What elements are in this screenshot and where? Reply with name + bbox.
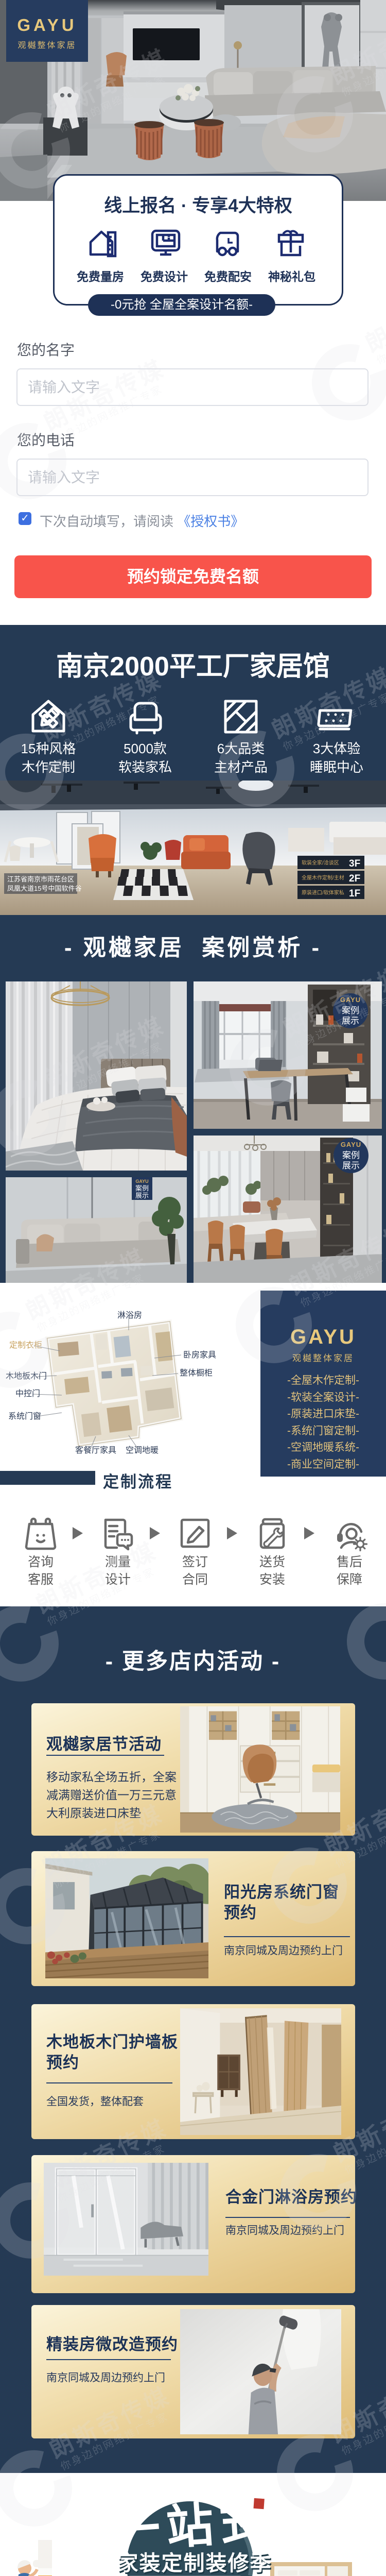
svg-text:6大品类: 6大品类 [217, 741, 265, 756]
svg-text:3F: 3F [349, 858, 360, 869]
svg-text:展示: 展示 [135, 1192, 149, 1199]
svg-text:原装进口/软体家私: 原装进口/软体家私 [302, 889, 344, 896]
svg-text:系统门窗: 系统门窗 [8, 1412, 41, 1421]
svg-text:设计: 设计 [105, 1572, 131, 1587]
svg-text:展示: 展示 [342, 1016, 359, 1026]
svg-text:睡眠中心: 睡眠中心 [310, 759, 363, 775]
svg-text:主材产品: 主材产品 [214, 759, 268, 775]
svg-text:家装定制装修季: 家装定制装修季 [117, 2551, 272, 2575]
svg-text:整体橱柜: 整体橱柜 [180, 1368, 213, 1378]
svg-text:测量: 测量 [105, 1555, 131, 1569]
svg-text:GAYU: GAYU [340, 996, 361, 1004]
svg-text:案例: 案例 [342, 1006, 359, 1015]
svg-text:案例: 案例 [135, 1184, 149, 1192]
svg-text:15种风格: 15种风格 [21, 741, 76, 756]
svg-text:3大体验: 3大体验 [313, 741, 360, 756]
svg-text:GAYU: GAYU [135, 1179, 148, 1184]
svg-text:免费设计: 免费设计 [141, 270, 188, 283]
svg-text:5000款: 5000款 [124, 741, 167, 756]
svg-text:2F: 2F [349, 873, 360, 884]
svg-text:1F: 1F [349, 888, 360, 899]
svg-text:签订: 签订 [182, 1555, 208, 1569]
svg-text:客服: 客服 [28, 1572, 54, 1587]
svg-text:神秘礼包: 神秘礼包 [268, 270, 315, 283]
svg-text:客餐厅家具: 客餐厅家具 [75, 1446, 116, 1455]
svg-text:展示: 展示 [342, 1161, 360, 1171]
svg-text:卧房家具: 卧房家具 [183, 1350, 216, 1360]
svg-text:一站式: 一站式 [111, 2495, 275, 2558]
svg-text:江苏省南京市雨花台区: 江苏省南京市雨花台区 [7, 875, 74, 883]
svg-text:售后: 售后 [337, 1555, 362, 1569]
svg-text:保障: 保障 [337, 1572, 362, 1587]
svg-text:软装全家/洽谈区: 软装全家/洽谈区 [302, 859, 339, 866]
svg-text:免费配安: 免费配安 [204, 270, 252, 283]
svg-text:咨询: 咨询 [28, 1555, 54, 1569]
svg-text:淋浴房: 淋浴房 [117, 1311, 142, 1320]
svg-text:合同: 合同 [182, 1572, 208, 1587]
svg-text:安装: 安装 [259, 1572, 285, 1587]
svg-text:中控门: 中控门 [15, 1389, 40, 1398]
svg-text:木作定制: 木作定制 [22, 759, 75, 775]
svg-text:GAYU: GAYU [341, 1141, 361, 1148]
svg-text:软装家私: 软装家私 [118, 759, 172, 775]
svg-text:全屋木作定制/主材: 全屋木作定制/主材 [302, 874, 344, 881]
svg-text:凤凰大道15号中国软件谷: 凤凰大道15号中国软件谷 [7, 885, 81, 892]
svg-text:木地板木门: 木地板木门 [6, 1371, 47, 1381]
svg-text:案例: 案例 [342, 1150, 360, 1160]
svg-text:空调地暖: 空调地暖 [126, 1446, 159, 1455]
svg-text:送货: 送货 [259, 1555, 285, 1569]
svg-text:定制衣柜: 定制衣柜 [9, 1341, 42, 1350]
svg-text:免费量房: 免费量房 [77, 270, 124, 283]
